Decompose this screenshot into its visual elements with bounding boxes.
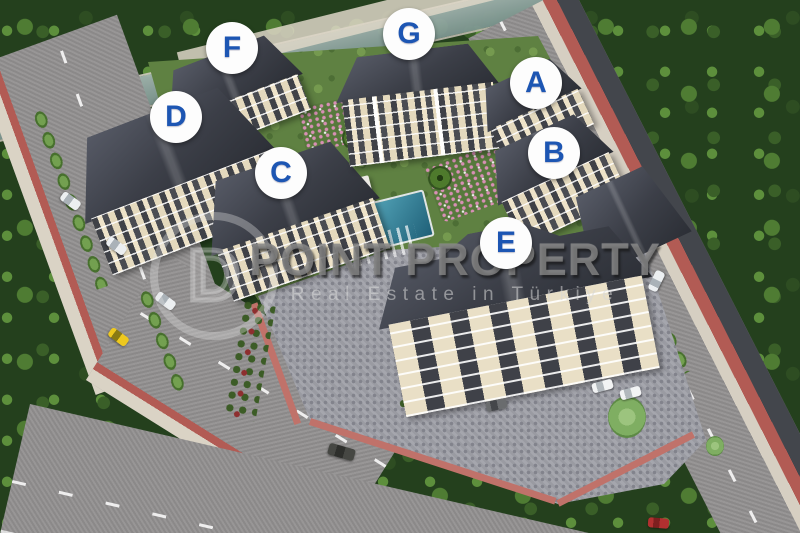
building-badge-d: D [150, 91, 202, 143]
palm-tree-3 [428, 166, 452, 190]
building-badge-c: C [255, 147, 307, 199]
watermark-tagline: Real Estate in Türkiye [235, 284, 675, 306]
car-red-bottom [648, 517, 670, 529]
building-badge-a: A [510, 57, 562, 109]
building-badge-b: B [528, 127, 580, 179]
watermark-brand: POINT PROPERTY [235, 234, 675, 286]
building-badge-f: F [206, 22, 258, 74]
aerial-render-scene: D POINT PROPERTY Real Estate in Türkiye … [0, 0, 800, 533]
building-g [337, 41, 501, 167]
plaza-tree-small [706, 436, 724, 456]
watermark-logo-letter: D [188, 240, 240, 312]
building-badge-g: G [383, 8, 435, 60]
building-badge-e: E [480, 217, 532, 269]
plaza-tree-large [608, 396, 646, 438]
